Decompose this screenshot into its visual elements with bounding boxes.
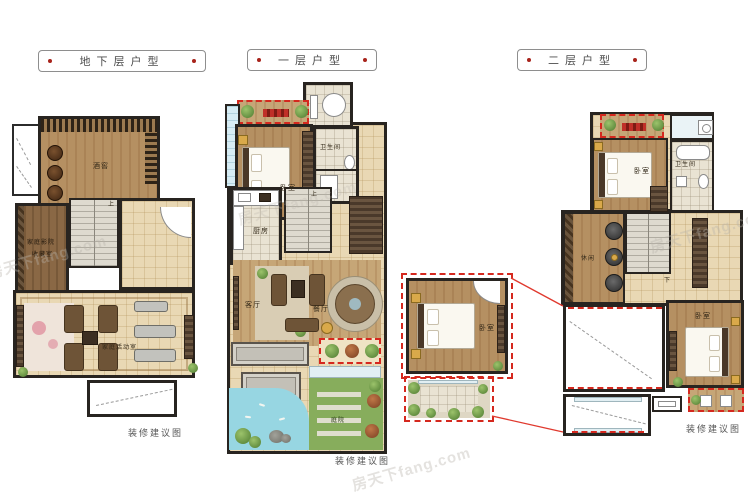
stone-platform: [231, 342, 309, 366]
plant: [369, 380, 381, 392]
floor1-title: 一层户型: [278, 52, 346, 68]
room-wine-cellar: 酒窖: [38, 116, 160, 206]
plant: [408, 382, 420, 394]
label-collection-room: 收藏室: [32, 252, 53, 258]
hatch-line: [16, 138, 31, 165]
washing-machine: [698, 120, 713, 135]
pillow: [709, 356, 720, 372]
room-bedroom-second: 卧室: [666, 300, 744, 388]
room-bathroom-f2: 卫生间: [670, 140, 714, 212]
plant: [249, 436, 261, 448]
red-dot-icon: [192, 59, 196, 63]
pillow: [607, 158, 618, 174]
plant: [604, 119, 616, 131]
plant: [18, 367, 28, 377]
inset-room-bedroom: 卧室: [406, 278, 508, 374]
nightstand: [594, 142, 603, 151]
label-activity-room: 家庭活动室: [102, 345, 137, 351]
flower-rack: [622, 123, 646, 131]
void-lower: [563, 394, 651, 436]
pillow: [607, 179, 618, 195]
label-kitchen: 厨房: [253, 228, 269, 235]
plant: [408, 404, 420, 416]
wardrobe: [650, 186, 668, 212]
stove: [259, 193, 271, 202]
toilet: [698, 174, 709, 189]
nightstand: [411, 293, 421, 303]
red-dashed-edge: [568, 387, 662, 389]
room-kitchen: 厨房: [230, 187, 282, 265]
stool: [605, 248, 623, 266]
sofa: [309, 274, 325, 306]
stair-down-marker: 下: [664, 278, 671, 284]
caption-floor2: 装修建议图: [686, 422, 741, 435]
sofa: [271, 274, 287, 306]
room-leisure: 休闲: [563, 212, 625, 304]
label-bedroom-f1: 卧室: [280, 185, 296, 192]
red-dot-icon: [633, 58, 637, 62]
coffee-table: [82, 331, 98, 345]
shrub: [365, 424, 379, 438]
label-living: 客厅: [245, 302, 261, 309]
wine-barrel: [47, 185, 63, 201]
wine-barrel: [47, 145, 63, 161]
floor2-title: 二层户型: [548, 52, 616, 68]
hatch-line: [96, 389, 173, 406]
treadmill: [134, 349, 176, 362]
red-dashed-edge: [568, 307, 662, 309]
bed: [417, 303, 475, 349]
living-dining-zone: 客厅 餐厅: [233, 260, 381, 346]
label-bedroom-second: 卧室: [695, 313, 711, 320]
nightstand: [731, 375, 740, 384]
chair: [720, 395, 732, 407]
stairs: [69, 198, 119, 268]
inset-terrace: [408, 380, 490, 418]
flower-decoration: [48, 339, 58, 349]
headboard: [418, 304, 424, 348]
pond: [229, 388, 309, 450]
dining-centerpiece: [349, 298, 361, 310]
red-dot-icon: [257, 58, 261, 62]
pillow: [251, 154, 262, 172]
plant: [365, 344, 379, 358]
rock: [281, 434, 291, 443]
red-dot-icon: [527, 58, 531, 62]
red-dot-icon: [363, 58, 367, 62]
plant: [295, 105, 308, 118]
plant: [472, 406, 484, 418]
label-bathroom-f2: 卫生间: [675, 162, 696, 168]
side-cabinet: [184, 315, 194, 359]
nightstand: [238, 135, 248, 145]
tv-cabinet: [497, 305, 505, 353]
balcony-red-dashed: [600, 114, 664, 138]
washer-door-icon: [702, 124, 711, 133]
plant: [652, 119, 664, 131]
plan-floor2: 卧室 卫生间 休闲 下: [558, 98, 748, 440]
plant: [673, 377, 683, 387]
bench: [658, 401, 676, 407]
sofa: [64, 343, 84, 371]
basement-title: 地下层户型: [80, 53, 165, 69]
stair-divider: [648, 214, 649, 272]
pillow: [427, 309, 439, 325]
plant: [478, 384, 488, 394]
sunken-patio: [87, 380, 177, 417]
exercise-bench: [134, 301, 168, 312]
badge-basement-title: 地下层户型: [38, 50, 206, 72]
tv-cabinet: [233, 276, 239, 330]
stair-divider: [94, 200, 95, 266]
toilet: [344, 155, 355, 170]
fish: [279, 417, 285, 420]
balcony-red-dashed: [688, 388, 744, 412]
bed: [685, 327, 729, 377]
wine-rack: [145, 132, 157, 184]
label-wine-cellar: 酒窖: [93, 163, 109, 170]
headboard: [722, 328, 728, 376]
fish: [259, 403, 265, 407]
sofa: [98, 305, 118, 333]
stair-divider: [308, 189, 309, 251]
room-home-cinema: 家庭影院 收藏室: [15, 203, 69, 293]
nightstand: [594, 200, 603, 209]
label-home-cinema: 家庭影院: [27, 240, 55, 246]
fish: [245, 416, 251, 419]
floorplan-sheet: 地下层户型 一层户型 二层户型 酒窖 家庭影院 收藏室: [0, 0, 748, 499]
hatch-line: [16, 166, 32, 188]
red-dashed-edge: [572, 431, 644, 433]
room-bedroom-main: 卧室: [592, 138, 668, 212]
laundry: [670, 114, 714, 140]
sink: [238, 193, 251, 202]
label-bathroom-f1: 卫生间: [320, 145, 341, 151]
cabinet: [18, 206, 24, 290]
stairs: [625, 212, 671, 274]
badge-floor1-title: 一层户型: [247, 49, 377, 71]
console-table: [310, 95, 318, 119]
caption-floor1: 装修建议图: [335, 454, 390, 467]
sink: [676, 176, 687, 187]
stool: [605, 274, 623, 292]
plant: [691, 395, 701, 405]
shoe-bench: [652, 396, 682, 412]
plant: [493, 361, 503, 371]
pillow: [427, 330, 439, 346]
label-dining: 餐厅: [313, 306, 329, 313]
label-bedroom-main: 卧室: [634, 168, 650, 175]
bathtub: [676, 145, 710, 160]
stool: [605, 222, 623, 240]
hall-cabinet: [692, 218, 708, 288]
treadmill: [134, 325, 176, 338]
caption-basement: 装修建议图: [128, 426, 183, 439]
plant: [241, 105, 254, 118]
label-inset-bedroom: 卧室: [479, 325, 495, 332]
stair-up-marker: 上: [108, 202, 115, 208]
pillow: [709, 335, 720, 351]
hall-cabinet: [349, 196, 383, 254]
kitchen-counter: [233, 206, 244, 250]
lightwell: [12, 124, 40, 196]
door-arc: [473, 281, 500, 304]
headboard: [599, 153, 605, 197]
plan-floor1: 卧室 卫生间 厨房 上: [225, 82, 390, 468]
entrance-porch: [303, 82, 353, 128]
garden: 庭院: [309, 378, 383, 450]
sofa: [64, 305, 84, 333]
plant: [257, 268, 268, 279]
wardrobe: [565, 214, 573, 302]
shrub: [367, 394, 381, 408]
partition-wall: [316, 169, 356, 171]
window-sill: [418, 380, 478, 384]
hatch-line: [569, 321, 651, 379]
plant: [448, 408, 460, 420]
label-courtyard: 庭院: [331, 418, 345, 424]
planter-red-dashed: [319, 338, 381, 364]
round-table: [322, 93, 346, 117]
window-sill: [309, 366, 381, 378]
chair: [700, 395, 712, 407]
stairs: [284, 187, 332, 253]
flower-rack: [263, 109, 289, 117]
stair-up-marker-f1: 上: [311, 192, 318, 198]
red-dot-icon: [48, 59, 52, 63]
door-arc: [160, 207, 191, 238]
wine-barrel: [47, 165, 63, 181]
label-leisure: 休闲: [581, 256, 595, 262]
shrub: [345, 344, 359, 358]
balcony-red-dashed: [237, 100, 309, 124]
inset-bedroom-detail: 卧室: [404, 250, 514, 422]
hatch-line: [572, 405, 646, 424]
tv-cabinet: [669, 331, 677, 371]
bed: [598, 152, 652, 198]
plan-basement: 酒窖 家庭影院 收藏室 上: [10, 100, 202, 445]
plant: [188, 363, 198, 373]
room-activity: 家庭活动室: [13, 290, 195, 378]
nightstand: [411, 349, 421, 359]
void-double-height: [563, 304, 665, 392]
plant: [426, 408, 436, 418]
wine-rack: [41, 119, 157, 132]
flower-decoration: [32, 321, 46, 335]
stepping-stones: [317, 384, 361, 440]
entry-hall: [119, 198, 195, 290]
coffee-table: [291, 280, 305, 298]
stool-cushion: [611, 254, 618, 261]
chaise: [285, 318, 319, 332]
plant: [325, 344, 339, 358]
nightstand: [731, 317, 740, 326]
window-sill: [574, 397, 642, 402]
pouf: [321, 322, 333, 334]
tv-cabinet: [16, 305, 24, 367]
badge-floor2-title: 二层户型: [517, 49, 647, 71]
